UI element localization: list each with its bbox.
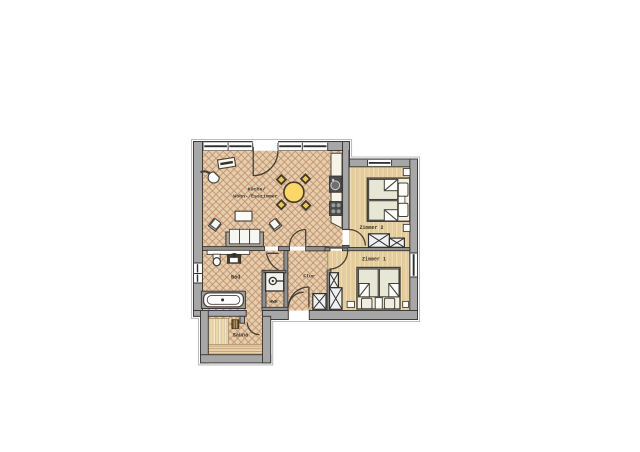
svg-text:Zimmer 1: Zimmer 1	[362, 257, 386, 263]
svg-text:Wohn-/Esszimmer: Wohn-/Esszimmer	[233, 193, 277, 199]
svg-text:HWR: HWR	[269, 299, 278, 305]
svg-text:Zimmer 2: Zimmer 2	[359, 225, 383, 231]
svg-text:Küche/: Küche/	[248, 186, 266, 192]
svg-text:Bad: Bad	[231, 275, 240, 281]
svg-text:Sauna: Sauna	[233, 333, 249, 339]
svg-text:Flur: Flur	[303, 273, 315, 279]
